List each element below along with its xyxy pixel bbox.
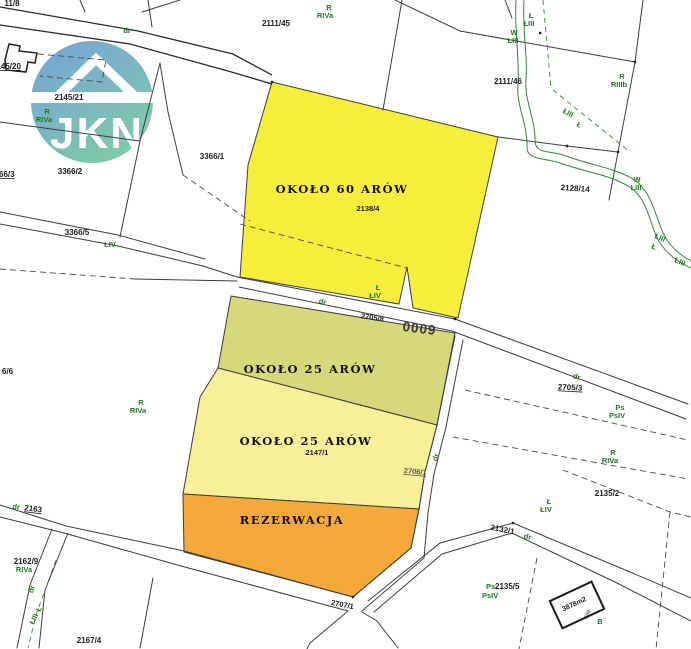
parcel-number-2135-2: 2135/2 <box>595 489 620 498</box>
land-use-riiib: RIIIb <box>611 80 628 89</box>
parcel-number-3366-5: 3366/5 <box>65 228 90 237</box>
land-use-liii: ŁIII <box>524 19 535 28</box>
label-okolo-25-arow-lower: OKOŁO 25 ARÓW <box>240 434 373 448</box>
parcel-number-3366-1: 3366/1 <box>200 152 225 161</box>
survey-point <box>634 61 636 63</box>
label-okolo-25-arow-upper: OKOŁO 25 ARÓW <box>244 362 377 376</box>
parcel-number-2135-5: 2135/5 <box>495 582 520 591</box>
label-rezerwacja: REZERWACJA <box>240 513 344 527</box>
land-use-riva: RIVa <box>602 456 619 465</box>
land-use-riva: RIVa <box>317 11 334 20</box>
land-use-b: B <box>597 617 603 626</box>
cadastral-map: JKN <box>0 0 691 649</box>
parcel-number-2111-46: 2111/46 <box>494 77 523 86</box>
parcel-number-3366-3: 66/3 <box>0 170 15 179</box>
parcel-number-2145-20: 2145/20 <box>0 62 21 71</box>
parcel-number-2167-4: 2167/4 <box>77 636 102 645</box>
land-use-liv: ŁIV <box>369 291 381 300</box>
survey-point <box>617 151 619 153</box>
survey-point <box>271 81 273 83</box>
parcel-number-2705-3: 2705/3 <box>558 382 583 392</box>
land-use-riva: RIVa <box>36 115 53 124</box>
parcel-number-2145-21: 2145/21 <box>55 93 84 102</box>
land-use-riva: RIVa <box>130 406 147 415</box>
land-use-liv: ŁIV <box>540 505 552 514</box>
parcel-number-3366-2: 3366/2 <box>58 167 83 176</box>
road-label-dr: dr <box>12 502 21 512</box>
land-use-liii: ŁIII <box>508 36 519 45</box>
land-use-riva: RIVa <box>16 565 33 574</box>
survey-point <box>539 32 541 34</box>
road-label-dr: dr <box>123 26 131 35</box>
land-use-psiv: PsIV <box>609 411 625 420</box>
parcel-number-2111-45: 2111/45 <box>262 19 291 28</box>
parcel-number-2138-4: 2138/4 <box>357 204 381 213</box>
survey-point <box>566 145 568 147</box>
land-use-liv: ŁIV <box>104 240 116 249</box>
parcel-number-66-6: 6/6 <box>2 367 14 376</box>
logo-text: JKN <box>50 109 144 158</box>
survey-point <box>512 522 514 524</box>
survey-point <box>352 596 354 598</box>
parcel-number-2147-1: 2147/1 <box>306 448 329 457</box>
map-canvas: JKN <box>0 0 691 649</box>
land-use-ps: Ps <box>486 582 495 591</box>
label-okolo-60-arow: OKOŁO 60 ARÓW <box>276 182 409 196</box>
survey-point <box>454 318 456 320</box>
land-use-psiv: PsIV <box>482 591 498 600</box>
land-use-liii: ŁIII <box>631 183 642 192</box>
parcel-number-11-8: 11/8 <box>4 0 20 8</box>
